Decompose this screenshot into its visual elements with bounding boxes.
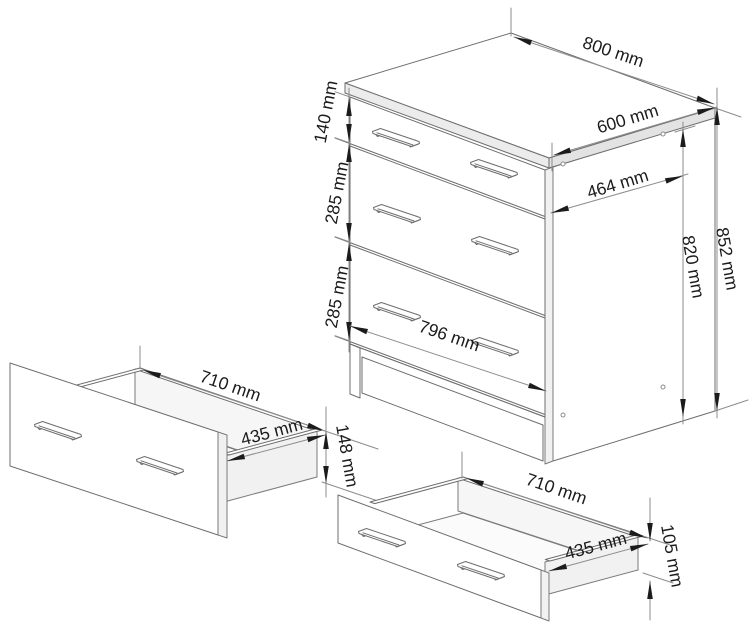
furniture-diagram: 800 mm 600 mm 464 mm 852 mm (0, 0, 750, 634)
dim-label-middle-drawer-height: 285 mm (321, 160, 353, 226)
large-drawer-panel-edge (218, 432, 227, 538)
small-drawer-panel-edge (541, 570, 549, 621)
cabinet-side-front-edge (545, 167, 553, 464)
dim-total-height: 852 mm (712, 88, 743, 418)
dim-label-bottom-drawer-height: 285 mm (321, 264, 353, 330)
small-drawer-left-rim (370, 477, 468, 504)
floor-extension-line (715, 400, 748, 411)
dim-label-top-drawer-height: 140 mm (310, 79, 342, 145)
large-drawer (10, 363, 322, 538)
dim-large-drawer-height: 148 mm (322, 407, 378, 501)
dim-small-drawer-height: 105 mm (643, 498, 688, 620)
screw-hole (661, 385, 665, 389)
dim-drawer-heights-chain: 140 mm 285 mm 285 mm (310, 79, 353, 352)
cabinet-left-foot (350, 344, 360, 398)
screw-hole (561, 413, 565, 417)
dim-label-large-drawer-height: 148 mm (332, 423, 363, 489)
screw-hole (661, 132, 665, 136)
screw-hole (561, 162, 565, 166)
diagram-canvas: 800 mm 600 mm 464 mm 852 mm (0, 0, 750, 634)
